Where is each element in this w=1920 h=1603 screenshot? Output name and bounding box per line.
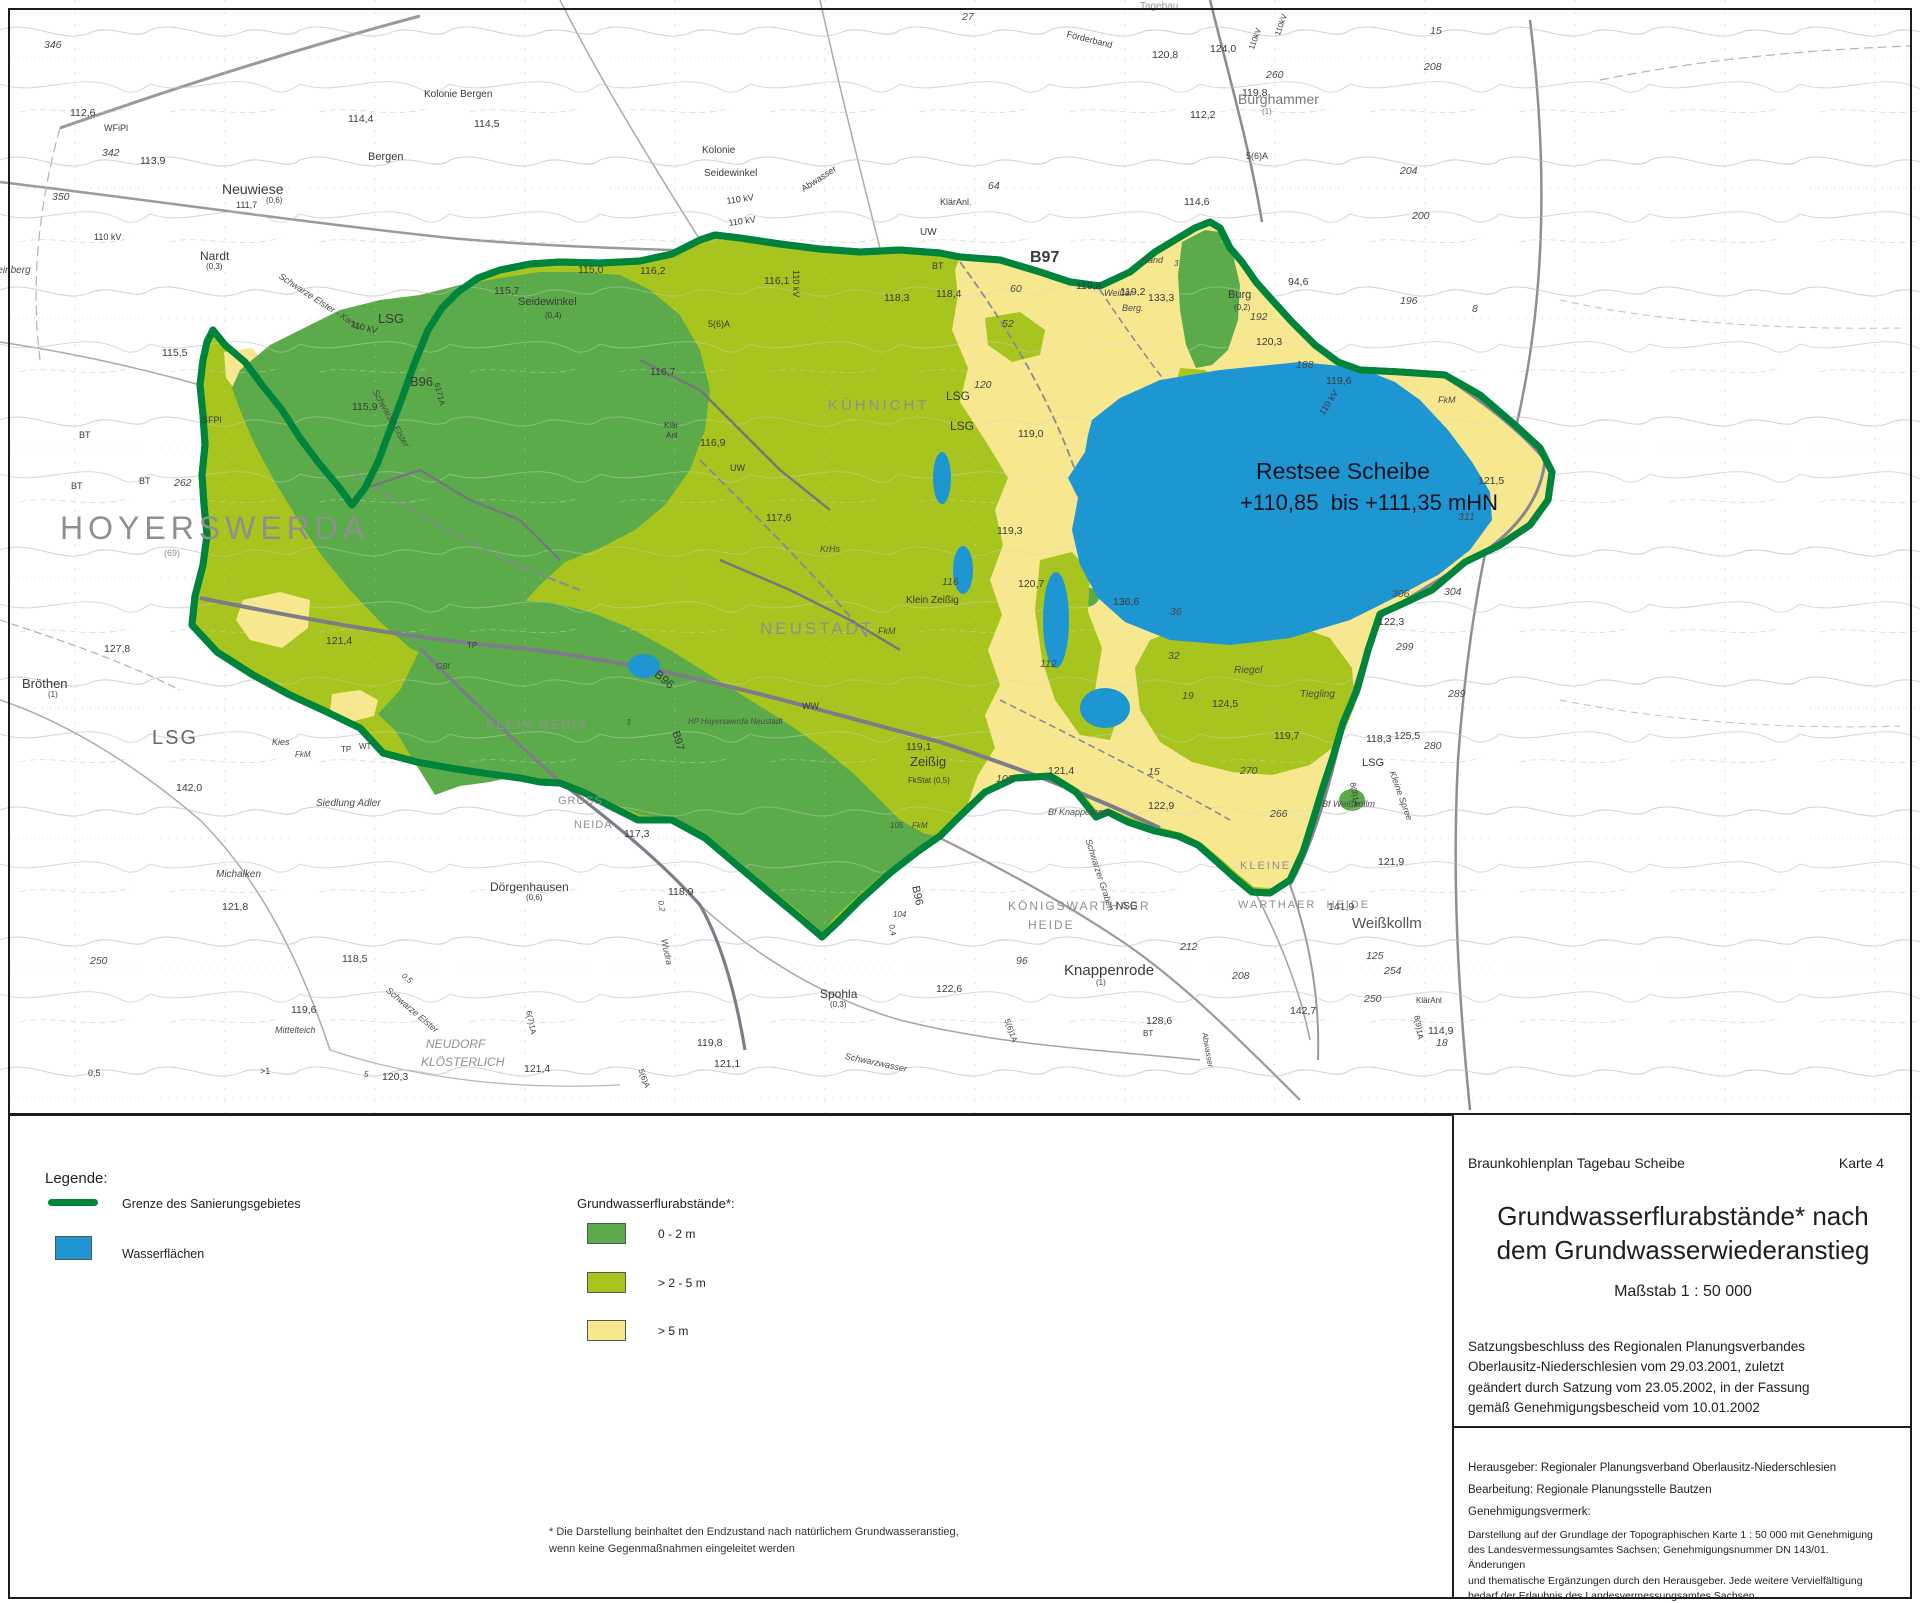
map-label: BT: [932, 262, 944, 271]
map-label: Klär: [664, 422, 678, 430]
map-label: 6(7)1A: [524, 1010, 537, 1035]
map-label: KLEIN NEIDA: [486, 718, 589, 731]
map-label: 114,5: [474, 119, 500, 130]
map-label: GBf: [436, 663, 450, 671]
map-label: NEUDORF: [426, 1038, 485, 1050]
map-label: 299: [1396, 642, 1414, 653]
map-label: 200: [1412, 211, 1430, 222]
map-label: FkM: [295, 751, 311, 759]
map-label: 0,2: [656, 900, 666, 912]
map-label: 136,6: [1113, 597, 1139, 608]
map-label: Sand: [1142, 256, 1163, 265]
water-swatch: [55, 1236, 92, 1260]
map-label: (0,3): [830, 1001, 846, 1009]
map-label: 133,3: [1148, 293, 1174, 304]
map-label: Schwarze Elster - Kanal: [277, 272, 362, 332]
map-label: 118,3: [1366, 734, 1392, 745]
map-label: 115,0: [578, 265, 604, 276]
map-label: TP: [467, 642, 477, 650]
map-label: 117,3: [624, 829, 650, 840]
map-label: KlärAnl: [1416, 997, 1442, 1005]
map-label: 127,8: [104, 644, 130, 655]
map-label: 36: [1170, 607, 1182, 618]
map-label: Dörgenhausen: [490, 881, 569, 893]
map-label: 117,6: [766, 513, 792, 524]
map-label: UW: [920, 228, 937, 238]
map-label: 116,1: [764, 276, 790, 287]
map-label: Weinberg: [0, 266, 31, 276]
map-label: 119,7: [1274, 731, 1300, 742]
legend-footnote: * Die Darstellung beinhaltet den Endzust…: [549, 1524, 959, 1558]
map-label: 116,7: [650, 367, 676, 378]
map-sheet: 346112,6WFiPl342113,9350110 kVNeuwiese11…: [0, 0, 1920, 1603]
map-label: WT: [359, 743, 371, 751]
map-label: 116: [942, 577, 959, 588]
map-label: >1: [260, 1067, 270, 1076]
map-label: 119,1: [906, 742, 932, 753]
map-label: 108: [996, 774, 1014, 785]
map-label: 114,9: [1428, 1026, 1454, 1037]
map-label: 8(9)1A: [1412, 1015, 1424, 1040]
map-label: 270: [1240, 766, 1258, 777]
map-label: LSG: [378, 312, 404, 325]
map-label: 120,3: [1256, 337, 1282, 348]
map-label: FkStat (0,5): [908, 777, 950, 785]
map-label: 346: [44, 40, 62, 51]
map-label: 121,8: [222, 902, 248, 913]
map-label: 118,4: [936, 289, 962, 300]
approval-text: Darstellung auf der Grundlage der Topogr…: [1468, 1528, 1888, 1603]
map-label: WFiPl: [104, 124, 128, 133]
map-label: Restsee Scheibe: [1256, 460, 1430, 483]
map-label: B97: [669, 730, 685, 752]
map-label: KÜHNICHT: [828, 398, 930, 413]
map-label: 121,4: [1048, 766, 1074, 777]
map-label: Seidewinkel: [704, 169, 757, 179]
map-label: 119,6: [291, 1005, 317, 1016]
plan-name: Braunkohlenplan Tagebau Scheibe: [1468, 1155, 1685, 1171]
map-label: KLÖSTERLICH: [421, 1056, 504, 1068]
map-label: 119,6: [1326, 376, 1352, 387]
map-label: 250: [1364, 994, 1382, 1005]
map-label: Spohla: [820, 988, 857, 1000]
map-label: Berg.: [1122, 304, 1144, 313]
map-label: 119,3: [997, 526, 1023, 537]
map-label: LSG: [946, 390, 970, 402]
map-label: 5(6)A: [708, 320, 730, 329]
map-label: LSG: [950, 420, 974, 432]
map-label: 8: [1472, 304, 1478, 315]
map-label: 250: [90, 956, 108, 967]
map-label: 121,4: [326, 636, 352, 647]
map-label: Schwarze Elster: [384, 986, 440, 1035]
map-label: Knappenrode: [1064, 963, 1154, 978]
map-label: 110 kV: [350, 320, 379, 336]
map-label: UW: [730, 464, 745, 473]
map-label: KrHs: [820, 545, 840, 554]
legend-heading: Legende:: [45, 1170, 108, 1187]
map-label: 125: [1366, 951, 1384, 962]
map-label: 122,6: [936, 984, 962, 995]
map-label: Wudra: [659, 938, 673, 966]
map-label: Förderband: [1066, 30, 1113, 50]
map-label: 52: [1002, 319, 1014, 330]
map-scale: Maßstab 1 : 50 000: [1454, 1283, 1912, 1301]
map-label: FkM: [878, 627, 896, 636]
map-label: Zeißig: [910, 755, 946, 768]
map-label: 260: [1266, 70, 1284, 81]
map-label: LSG: [1362, 758, 1384, 769]
map-label: 0,4: [887, 924, 897, 936]
map-label: Burg: [1228, 290, 1251, 301]
gw-swatch-over5: [587, 1320, 626, 1341]
map-label: Abwasser: [1200, 1032, 1214, 1068]
map-label: +110,85 bis +111,35 mHN: [1240, 492, 1498, 514]
map-label: KLEINE: [1240, 861, 1291, 872]
map-label: 204: [1400, 166, 1418, 177]
map-label: KlärAnl.: [940, 198, 972, 207]
map-label: Schwarze Elster: [370, 388, 410, 449]
map-label: 110 kV: [791, 270, 800, 297]
map-label: Weißkollm: [1352, 916, 1422, 931]
map-label: FkM: [912, 822, 928, 830]
map-label: 96: [1016, 956, 1028, 967]
groundwater-legend-heading: Grundwasserflurabstände*:: [577, 1196, 735, 1211]
map-label: Siedlung Adler: [316, 799, 381, 809]
map-label: 32: [1168, 651, 1180, 662]
map-label: 5: [364, 1071, 368, 1079]
map-label: 116,2: [640, 266, 666, 277]
map-label: FkM: [1438, 396, 1456, 405]
boundary-line-swatch: [48, 1199, 98, 1206]
map-label: B96: [652, 668, 676, 691]
map-label: 110kV: [1248, 27, 1263, 50]
map-label: Kleine Spree: [1388, 770, 1414, 822]
map-label: TP: [341, 746, 351, 754]
map-label: 120: [974, 380, 992, 391]
map-label: 122,3: [1378, 617, 1404, 628]
map-label: Abwasser: [800, 164, 838, 193]
map-label: 111,7: [236, 201, 257, 210]
map-label: 64: [988, 181, 1000, 192]
map-label: 192: [1250, 312, 1268, 323]
map-label: Schwarzwasser: [844, 1052, 908, 1074]
map-label: (1): [1096, 979, 1106, 987]
map-label: BT: [79, 431, 91, 440]
map-label: 5(6)A: [1246, 152, 1268, 161]
map-label: Anl: [666, 432, 678, 440]
map-label: 262: [174, 478, 192, 489]
map-label: Nardt: [200, 250, 229, 262]
map-label: 289: [1448, 689, 1466, 700]
map-label: 254: [1384, 966, 1402, 977]
map-label: Riegel: [1234, 666, 1262, 676]
map-label: 306: [1392, 589, 1410, 600]
gw-swatch-0-2: [587, 1223, 626, 1244]
map-label: (69): [164, 549, 180, 558]
map-label: Neuwiese: [222, 182, 283, 196]
map-label: NEIDA: [574, 820, 613, 831]
map-label: B96: [410, 375, 433, 388]
title-block: Braunkohlenplan Tagebau Scheibe Karte 4 …: [1452, 1115, 1912, 1597]
map-label: 114,4: [348, 114, 374, 125]
map-label: HEIDE: [1028, 919, 1075, 931]
map-label: 0,5: [400, 972, 414, 985]
map-label: 5(6)1A: [1002, 1018, 1018, 1043]
map-label: Bergen: [368, 152, 403, 163]
map-label: 15: [1148, 767, 1160, 778]
map-label: 119,0: [1018, 429, 1044, 440]
map-label: 18: [1436, 1038, 1448, 1049]
map-label: 5(6)A: [636, 1068, 650, 1089]
editing-line: Bearbeitung: Regionale Planungsstelle Ba…: [1468, 1484, 1712, 1496]
map-label: NEUSTADT: [760, 620, 874, 637]
map-label: WW: [802, 702, 819, 711]
gw-swatch-2-5: [587, 1272, 626, 1293]
map-label: 125,5: [1394, 731, 1420, 742]
map-label: 19: [1182, 691, 1194, 702]
map-label: 0,5: [88, 1069, 101, 1078]
map-label: 208: [1424, 62, 1442, 73]
map-label: (0,6): [526, 894, 542, 902]
map-label: Kies: [272, 738, 290, 747]
map-label: Mittelteich: [275, 1026, 316, 1035]
map-label: 110 kV: [94, 233, 121, 242]
map-label: Michalken: [216, 870, 261, 880]
map-label: 115,7: [494, 286, 520, 297]
map-label: 6171A: [432, 382, 446, 406]
map-label: SFPl: [202, 416, 222, 425]
map-label: B96: [909, 885, 924, 906]
map-label: BT: [139, 477, 151, 486]
map-label: 120,7: [1018, 579, 1044, 590]
map-label: (1): [48, 691, 58, 699]
resolution-text: Satzungsbeschluss des Regionalen Planung…: [1468, 1337, 1809, 1418]
map-label: (0,4): [545, 312, 561, 320]
gw-label-over5: > 5 m: [658, 1324, 688, 1338]
map-label: GROSS: [558, 796, 603, 807]
gw-label-0-2: 0 - 2 m: [658, 1227, 695, 1241]
map-label: HP Hoyerswerda Neustadt: [688, 718, 782, 726]
map-label: BT: [71, 482, 83, 491]
water-legend-label: Wasserflächen: [122, 1247, 204, 1261]
map-label: 110kV: [1274, 13, 1289, 36]
map-label: HOYERSWERDA: [60, 512, 369, 544]
map-label: 110 kV: [728, 215, 756, 228]
map-label: (1): [1262, 108, 1272, 116]
map-label: Bf Knappenrode: [1048, 808, 1113, 817]
map-label: (0,2): [1234, 304, 1250, 312]
map-label: Kolonie Bergen: [424, 90, 492, 100]
map-label: Tagebau: [1140, 2, 1178, 12]
map-label: 121,4: [524, 1064, 550, 1075]
boundary-legend-label: Grenze des Sanierungsgebietes: [122, 1197, 301, 1211]
map-label: 141,9: [1328, 902, 1354, 913]
map-label: Bf Weißkollm: [1322, 800, 1375, 809]
map-label: BT: [1143, 1030, 1153, 1038]
map-label: 121,9: [1378, 857, 1404, 868]
map-label: 119,8: [1076, 281, 1102, 292]
map-label: Weißer: [1104, 289, 1133, 298]
map-label: 105: [890, 822, 903, 830]
map-label: 3: [626, 719, 630, 727]
map-label: (0,6): [266, 197, 282, 205]
map-label: Seidewinkel: [518, 297, 577, 308]
map-label: 115,9: [352, 402, 378, 413]
map-label: 121,1: [714, 1059, 740, 1070]
map-labels-layer: 346112,6WFiPl342113,9350110 kVNeuwiese11…: [0, 0, 1920, 1115]
map-label: 3: [1174, 260, 1178, 268]
map-label: 208: [1232, 971, 1250, 982]
map-label: NSG: [1116, 902, 1138, 912]
map-label: 118,3: [884, 293, 910, 304]
map-label: 120,8: [1152, 50, 1178, 61]
map-label: 350: [52, 192, 70, 203]
map-label: 124,0: [1210, 44, 1236, 55]
title-block-upper: Braunkohlenplan Tagebau Scheibe Karte 4 …: [1454, 1115, 1912, 1428]
map-label: 94,6: [1288, 277, 1308, 288]
map-label: 110 kV: [726, 193, 754, 206]
map-label: 118,5: [342, 954, 368, 965]
map-label: 116,9: [700, 438, 726, 449]
map-label: 121,5: [1478, 476, 1504, 487]
map-label: 342: [102, 148, 120, 159]
map-label: 113,9: [140, 156, 166, 167]
map-label: 142,0: [176, 783, 202, 794]
map-label: (0,3): [206, 263, 222, 271]
map-label: 115,5: [162, 348, 188, 359]
map-label: 212: [1180, 942, 1198, 953]
map-label: 188: [1296, 360, 1314, 371]
map-number: Karte 4: [1839, 1155, 1884, 1171]
map-label: 112,2: [1190, 110, 1216, 121]
map-label: 122,9: [1148, 801, 1174, 812]
map-title: Grundwasserflurabstände* nach dem Grundw…: [1454, 1200, 1912, 1268]
map-label: 15: [1430, 26, 1442, 37]
map-label: 118,9: [668, 887, 694, 898]
map-area: 346112,6WFiPl342113,9350110 kVNeuwiese11…: [0, 0, 1920, 1115]
map-label: 280: [1424, 741, 1442, 752]
map-label: 119,8: [697, 1038, 723, 1049]
map-label: 60: [1010, 284, 1022, 295]
map-label: 266: [1270, 809, 1288, 820]
map-label: 27: [962, 12, 974, 23]
map-label: Kolonie: [702, 146, 735, 156]
gw-label-2-5: > 2 - 5 m: [658, 1276, 706, 1290]
map-label: Bröthen: [22, 677, 68, 690]
map-label: 124,5: [1212, 699, 1238, 710]
map-label: Klein Zeißig: [906, 596, 959, 606]
map-label: 128,6: [1146, 1016, 1172, 1027]
map-label: B97: [1030, 250, 1059, 266]
map-label: 142,7: [1290, 1006, 1316, 1017]
map-label: Tiegling: [1300, 690, 1335, 700]
map-label: 112,6: [70, 108, 96, 119]
map-label: 114,6: [1184, 197, 1210, 208]
map-label: 304: [1444, 587, 1462, 598]
map-label: 112: [1040, 659, 1057, 670]
map-label: 104: [893, 911, 906, 919]
publisher-line: Herausgeber: Regionaler Planungsverband …: [1468, 1462, 1836, 1474]
map-label: Burghammer: [1238, 92, 1319, 106]
approval-label: Genehmigungsvermerk:: [1468, 1506, 1591, 1518]
map-label: 120,3: [382, 1072, 408, 1083]
map-label: LSG: [152, 728, 198, 748]
map-label: 196: [1400, 296, 1418, 307]
map-label: 110 kV: [1318, 389, 1340, 417]
